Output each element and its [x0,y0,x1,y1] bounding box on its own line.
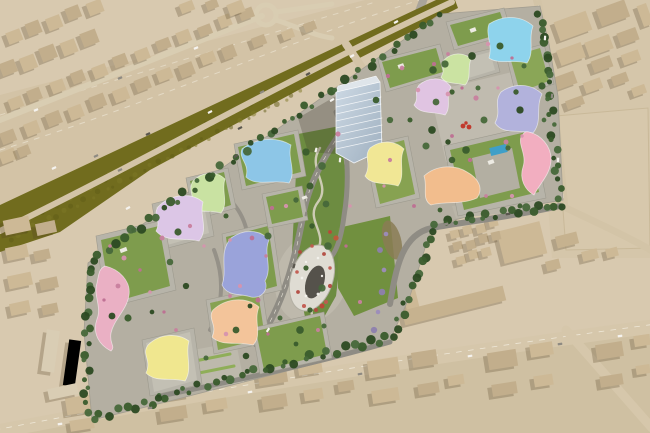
trees-west-courtyards [203,355,208,360]
verge-texture [61,208,66,213]
trees-flowering-pink [316,328,320,332]
trees-flowering-pink [335,131,340,136]
trees-flowering-pink [148,290,152,294]
canopy-blue-west [241,139,292,183]
treeline-south [193,381,200,388]
trees-flowering-pink [108,244,112,248]
trees-flowering-pink [228,238,232,242]
trees-plaza [433,99,440,106]
verge-texture [46,215,51,220]
treeline-south [239,372,245,378]
trees-flowering-pink [450,134,454,138]
verge-texture [76,205,79,208]
treeline-west [87,341,92,346]
treeline-east [539,26,546,33]
treeline-south-upper [405,296,412,303]
treeline-south [226,375,235,384]
canopy-yellow-west [146,335,189,381]
verge-texture [194,144,197,147]
trees-west-courtyards [167,259,174,266]
trees-spine [318,284,325,291]
treeline-southwest [114,404,122,412]
trees-violet-road [384,232,389,237]
treeline-northwest [210,172,215,177]
trees-spine [303,265,308,270]
verge-texture [298,89,302,93]
trees-west-courtyards [174,228,181,235]
verge-texture [133,172,138,177]
treeline-southeast [522,203,530,211]
treeline-southwest [131,404,140,413]
treeline-south [380,332,388,340]
treeline-northwest [120,233,129,242]
treeline-south [289,360,298,369]
trees-plaza [505,145,510,150]
red-sculpture [464,121,467,124]
treeline-east [544,54,553,63]
treeline-northwest [243,147,252,156]
treeline-south [221,375,227,381]
trees-flowering-pink [116,284,121,289]
trees-flowering-pink [446,92,451,97]
trees-west-courtyards [183,283,189,289]
trees-flowering-pink [202,244,205,247]
trees-spine [306,182,313,189]
treeline-south [320,354,326,360]
aerial-masterplan-render [0,0,650,433]
treeline-south-upper [429,228,436,235]
treeline-south-upper [394,317,399,322]
trees-flowering-pink [159,235,164,240]
treeline-northwest [152,214,160,222]
canopy-pink-east [414,79,451,115]
treeline-east [555,176,560,181]
trees-flowering-pink [432,62,436,66]
canopy-green-east [441,54,471,85]
verge-texture [92,196,95,199]
treeline-northwest [332,88,337,93]
oval-furniture [301,277,304,280]
verge-texture [207,137,211,141]
treeline-south-upper [409,282,417,290]
treeline-west [86,386,91,391]
treeline-south [341,341,350,350]
treeline-northwest [392,48,398,54]
trees-flowering-pink [400,66,405,71]
treeline-northwest [93,251,101,259]
treeline-northwest [175,200,180,205]
trees-flowering-pink [484,194,488,198]
verge-texture [229,125,233,129]
treeline-northwest [427,20,434,27]
trees-east-misc [438,208,443,213]
trees-violet-road [371,327,377,333]
treeline-northwest [162,205,168,211]
trees-spine [293,197,298,202]
treeline-south [263,367,268,372]
treeline-southeast [500,207,507,214]
treeline-west [85,294,94,303]
treeline-east [539,19,547,27]
trees-plaza [475,85,480,90]
trees-flowering-pink [238,284,242,288]
trees-flowering-pink [264,254,267,257]
verge-texture [53,214,59,220]
oval-planters [295,270,299,274]
treeline-northwest [297,113,303,119]
verge-texture [285,98,288,101]
verge-texture [106,187,109,190]
trees-flowering-pink [224,332,228,336]
treeline-south [376,340,383,347]
oval-planters [324,300,328,304]
treeline-northwest [318,92,324,98]
treeline-east [545,97,550,102]
trees-west-courtyards [124,314,131,321]
trees-flowering-pink [460,86,463,89]
trees-flowering-pink [228,294,232,298]
trees-plaza [441,60,448,67]
treeline-northwest [290,116,295,121]
trees-east-misc [373,97,380,104]
playground-red [328,230,332,234]
trees-west-courtyards [150,310,155,315]
treeline-northwest [368,62,377,71]
trees-east-misc [521,63,526,68]
verge-texture [129,177,132,180]
treeline-northwest [106,247,113,254]
trees-flowering-pink [496,86,499,89]
treeline-northwest [437,12,443,18]
trees-flowering-pink [284,204,288,208]
treeline-northwest [145,214,153,222]
trees-west-courtyards [278,316,283,321]
trees-plaza [445,139,450,144]
trees-flowering-pink [388,158,392,162]
verge-texture [266,105,270,109]
treeline-south [245,369,250,374]
trees-flowering-pink [266,332,269,335]
treeline-east [548,137,553,142]
oval-planters [314,308,318,312]
treeline-south-upper [413,273,422,282]
cars-northeast-road [544,36,547,41]
treeline-northwest [231,160,236,165]
treeline-south-upper [401,310,410,319]
oval-planters [296,290,300,294]
trees-spine [302,148,309,155]
treeline-west [85,367,93,375]
oval-planters [322,252,326,256]
treeline-south-upper [418,257,427,266]
trees-flowering-pink [358,300,362,304]
verge-texture [263,109,266,112]
verge-texture [237,118,242,123]
trees-spine [307,307,312,312]
treeline-south [281,364,286,369]
playground-red [320,304,325,309]
scene-root [0,0,650,433]
canopy-yellow-east [365,142,404,186]
treeline-southeast [493,215,498,220]
trees-west-courtyards [248,304,253,309]
treeline-southeast [550,203,558,211]
trees-violet-road [379,289,386,296]
verge-texture [155,158,161,164]
verge-texture [274,101,280,107]
red-sculpture [467,125,472,130]
trees-violet-road [382,268,387,273]
treeline-west [84,409,92,417]
trees-west-courtyards [243,353,250,360]
trees-east-misc [407,117,412,122]
trees-flowering-pink [382,184,385,187]
oval-furniture [317,293,320,296]
treeline-south [333,350,341,358]
treeline-southeast [544,204,551,211]
trees-flowering-pink [386,74,390,78]
treeline-southeast [558,203,565,210]
trees-spine [309,223,314,228]
trees-plaza [513,89,518,94]
treeline-south [180,386,185,391]
trees-flowering-pink [486,42,490,46]
oval-furniture [305,295,308,298]
treeline-south-upper [394,325,402,333]
treeline-northwest [111,239,121,249]
trees-east-misc [422,142,429,149]
verge-texture [148,163,152,167]
treeline-southeast [530,207,539,216]
trees-spine [321,323,326,328]
verge-texture [215,129,220,134]
treeline-southeast [430,221,438,229]
treeline-northwest [216,161,224,169]
trees-west-courtyards [233,327,240,334]
trees-flowering-pink [102,298,105,301]
trees-spine [318,162,326,170]
trees-flowering-pink [510,56,513,59]
treeline-south [366,335,376,345]
verge-texture [200,137,203,140]
verge-texture [166,157,170,161]
oval-planters [302,304,306,308]
treeline-south [174,389,180,395]
trees-flowering-pink [473,95,478,100]
verge-texture [289,93,294,98]
trees-west-courtyards [264,232,271,239]
trees-spine [323,201,330,208]
trees-flowering-pink [416,88,420,92]
trees-flowering-pink [504,140,509,145]
treeline-west [81,358,86,363]
treeline-southwest [124,403,133,412]
treeline-east [534,11,541,18]
trees-flowering-pink [138,268,141,271]
treeline-south [351,340,360,349]
treeline-northwest [340,75,350,85]
verge-texture [68,204,73,209]
trees-flowering-pink [412,204,416,208]
verge-texture [248,117,251,120]
treeline-south [249,365,257,373]
scene-svg [0,0,650,433]
treeline-northwest [379,53,386,60]
trees-flowering-pink [174,328,178,332]
treeline-west [79,389,88,398]
trees-east-misc [387,117,393,123]
treeline-southwest [141,399,148,406]
treeline-southeast [480,216,485,221]
verge-texture [117,178,123,184]
treeline-northwest [393,41,400,48]
treeline-south-upper [400,300,405,305]
trees-west-courtyards [294,342,299,347]
oval-furniture [317,257,320,260]
treeline-south [304,356,309,361]
treeline-east [555,195,562,202]
treeline-south [187,391,192,396]
treeline-northwest [419,22,427,30]
treeline-northwest [409,31,417,39]
verge-texture [179,148,184,153]
trees-east-misc [542,118,547,123]
treeline-east [546,71,553,78]
trees-east-misc [538,82,545,89]
playground-red [333,235,338,240]
verge-texture [9,238,14,243]
trees-flowering-pink [162,310,165,313]
trees-spine [296,326,304,334]
treeline-south [390,333,398,341]
treeline-northwest [137,224,146,233]
treeline-northwest [355,67,361,73]
trees-flowering-pink [121,255,126,260]
trees-flowering-pink [250,236,255,241]
trees-plaza [428,126,436,134]
trees-flowering-pink [446,52,450,56]
oval-planters [298,250,302,254]
treeline-southwest [91,416,98,423]
verge-texture [95,189,100,194]
oval-planters [328,266,331,269]
trees-east-misc [469,217,476,224]
verge-texture [225,127,228,130]
trees-west-courtyards [109,313,116,320]
treeline-southwest [105,412,114,421]
treeline-south [204,383,211,390]
cars-internal [339,158,342,163]
trees-west-courtyards [223,213,228,218]
trees-flowering-pink [468,158,472,162]
trees-violet-road [376,310,380,314]
treeline-northwest [371,58,376,63]
treeline-northwest [310,104,315,109]
canopy-cyan-east [488,17,533,63]
treeline-northwest [300,102,308,110]
treeline-northwest [257,134,264,141]
treeline-northwest [195,178,200,183]
trees-plaza [516,106,523,113]
oval-furniture [305,261,307,263]
treeline-west [81,329,88,336]
treeline-east [554,146,562,154]
treeline-northwest [192,188,197,193]
treeline-west [82,377,87,382]
treeline-west [86,286,95,295]
treeline-southeast [453,221,458,226]
treeline-northwest [271,127,278,134]
trees-plaza [496,42,503,49]
oval-planters [328,284,332,288]
treeline-northwest [178,188,187,197]
cars-northeast-road [557,158,560,163]
oval-furniture [321,275,323,277]
trees-plaza [429,66,437,74]
treeline-east [547,79,552,84]
treeline-west [81,312,90,321]
treeline-northwest [248,140,254,146]
treeline-south [322,347,330,355]
trees-flowering-pink [520,134,523,137]
trees-plaza [468,52,476,60]
verge-texture [111,186,114,189]
trees-east-misc [449,157,456,164]
trees-flowering-pink [188,224,192,228]
treeline-east [551,167,559,175]
treeline-south [213,378,220,385]
treeline-northwest [166,197,175,206]
verge-texture [250,111,256,117]
verge-texture [187,145,191,149]
treeline-west [87,268,95,276]
treeline-northwest [282,119,287,124]
trees-flowering-pink [256,298,261,303]
trees-plaza [462,146,470,154]
treeline-west [83,400,88,405]
treeline-east [546,112,551,117]
trees-spine [324,242,332,250]
trees-violet-road [377,247,383,253]
treeline-east [552,122,557,127]
trees-east-misc [518,204,523,209]
verge-texture [143,169,146,172]
red-sculpture [461,124,466,129]
trees-plaza [481,117,488,124]
verge-texture [80,196,86,202]
trees-west-courtyards [131,227,137,233]
treeline-east [551,156,556,161]
trees-flowering-pink [344,244,347,247]
treeline-east [558,185,565,192]
treeline-south [161,395,169,403]
oval-planters [310,244,314,248]
treeline-northwest [353,75,358,80]
treeline-southwest [155,394,162,401]
trees-flowering-pink [348,204,352,208]
trees-flowering-pink [270,206,274,210]
trees-flowering-pink [510,194,514,198]
treeline-south-upper [423,241,430,248]
verge-texture [170,154,175,159]
